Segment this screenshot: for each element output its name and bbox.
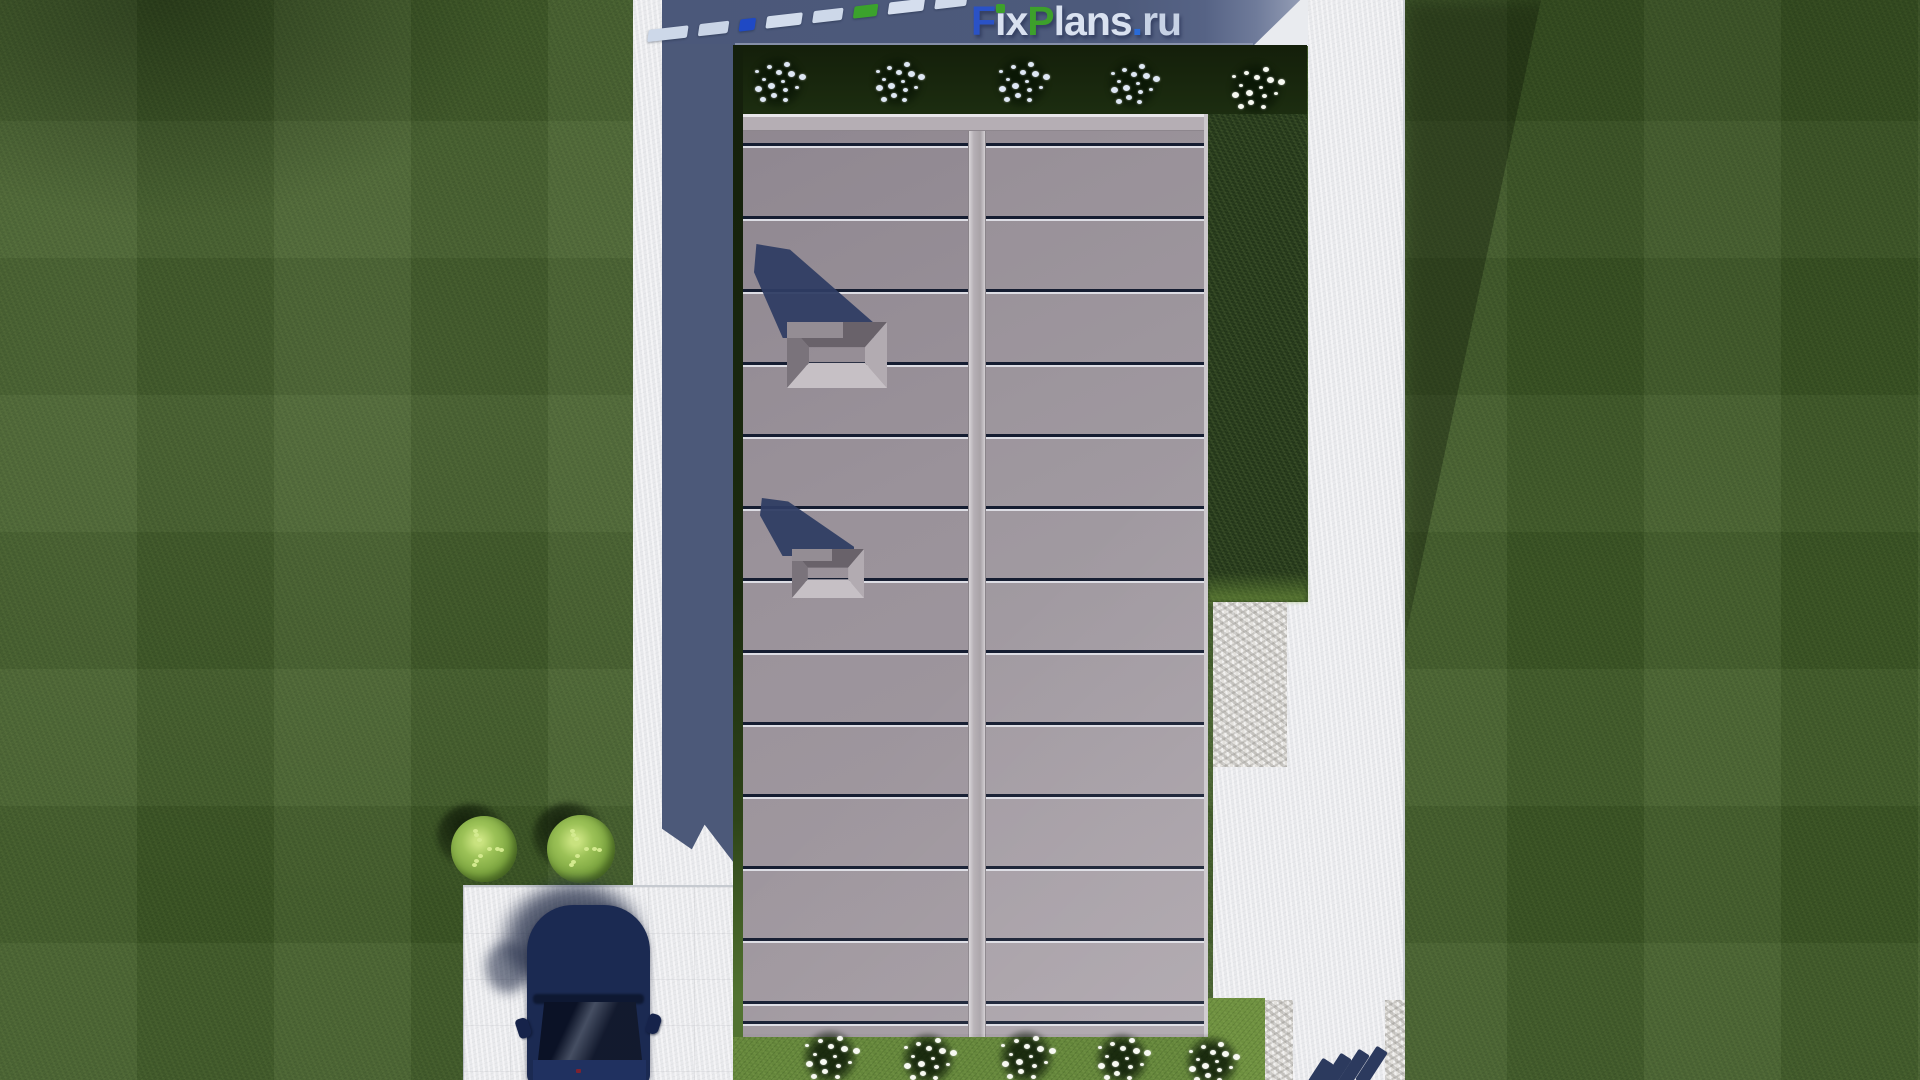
flower [1032,1064,1037,1068]
flower-cluster [898,1029,958,1080]
flower [1025,80,1029,83]
car-shadow [483,938,533,996]
flower [1028,62,1034,67]
flower [1111,72,1115,75]
roof-seam [743,650,968,655]
flower [901,80,905,83]
stone-patio [1213,602,1287,767]
flower [820,1059,827,1065]
flower [1229,1066,1233,1069]
flower [755,70,759,73]
flower [1133,1048,1140,1054]
flower [1049,1048,1056,1054]
flower [876,70,880,73]
roof-seam [986,722,1208,727]
flower [891,93,897,98]
flower [835,1075,840,1079]
flower [1261,105,1266,109]
flower [1016,1059,1023,1065]
flower [1278,79,1285,85]
flower [1233,1054,1240,1060]
watermark-letter: lans [1054,1,1132,41]
flower-bed-blob [1186,1036,1237,1080]
roof-cap-band [743,114,1208,131]
flower [1007,1074,1013,1079]
lawn-shade-topleft [0,0,660,420]
flower [918,74,925,80]
flower [939,1048,946,1054]
flower [1143,73,1150,79]
flower-cluster [995,1026,1057,1080]
flower [813,1053,817,1056]
roof-seam [986,506,1208,511]
roof-seam [986,650,1208,655]
bush-leaf-highlight [499,848,504,852]
flower-cluster [993,53,1051,111]
roof-seam [743,1001,968,1006]
flower [1117,80,1121,83]
flower [776,70,782,75]
roof-seam [986,434,1208,439]
car-windshield [538,1002,642,1060]
flower [1210,1050,1216,1055]
flower [1149,88,1153,91]
flower [1127,1076,1132,1080]
flower [853,1048,860,1054]
flower [1129,1038,1135,1043]
skylight-face [792,549,832,561]
flower [1267,77,1274,83]
flower [1009,1053,1013,1056]
flower [1126,95,1132,100]
skylight-2 [792,549,864,598]
flower-cluster [799,1026,861,1080]
flower [1232,92,1239,98]
roof-seam [986,1001,1208,1006]
flower [1112,1061,1119,1067]
bush-leaf-highlight [477,838,482,842]
garden-bed-sunlit-fringe [1208,572,1307,602]
flower [903,88,908,92]
watermark-letter: ı [995,1,1005,41]
flower [999,86,1006,92]
roof-seam [986,216,1208,221]
flower [910,1075,916,1080]
flower [946,1063,950,1066]
flower [755,86,762,92]
flower [950,1050,957,1056]
flower [1274,92,1278,95]
flower [806,1061,813,1067]
roof-seam [986,362,1208,367]
watermark-letter: F [971,1,995,41]
flower [1153,76,1160,82]
house-roof [743,114,1208,1037]
flower [1144,1050,1151,1056]
roof-section-right [986,114,1208,1037]
flower [841,1046,848,1052]
roof-seam [986,578,1208,583]
flower [1246,90,1253,96]
flower [1125,1057,1129,1060]
flower [1136,82,1140,85]
flower-cluster [1226,58,1286,118]
bush-leaf-highlight [472,863,477,867]
bush-leaf-highlight [574,837,579,841]
flower [904,1063,911,1069]
right-walkway [1308,0,1405,1080]
flower [999,70,1003,73]
flower [784,62,790,67]
watermark-letter: ru [1142,1,1181,41]
car-roof-detail [576,1069,581,1073]
flower [1043,74,1050,80]
roof-ridge [968,114,986,1037]
flower [1122,68,1127,72]
flower [1002,1061,1009,1067]
flower [1189,1050,1193,1053]
flower [1196,1058,1200,1061]
roof-seam [986,938,1208,943]
flower [799,74,806,80]
flower-bed-blob [902,1033,955,1080]
flower-bed-blob [999,1030,1054,1080]
flower-cluster [1092,1029,1152,1080]
flower-bed-blob [1096,1033,1149,1080]
flower [1189,1066,1196,1072]
flower [836,1064,841,1068]
boundary-dash [738,18,756,32]
flower [933,1076,938,1080]
flower [1020,70,1026,75]
flower-cluster [749,53,807,111]
roof-seam [986,143,1208,148]
flower [911,1055,915,1058]
flower [1218,1042,1224,1047]
flower-bed-blob [803,1030,858,1080]
flower [1116,99,1122,104]
flower-cluster [1105,56,1161,112]
flower-cluster [870,54,926,110]
roof-seam [743,722,968,727]
watermark-letter: x [1005,1,1027,41]
flower [811,1074,817,1079]
site-plan-render: FıxPlans.ru [0,0,1920,1080]
flower [1239,84,1243,87]
flower [795,86,799,89]
roof-seam [986,866,1208,871]
fixplans-watermark: FıxPlans.ru [971,1,1181,45]
bush-leaf-highlight [597,848,602,852]
roof-seam [743,143,968,148]
flower [914,86,918,89]
roof-seam [743,866,968,871]
bush-leaf-highlight [570,829,575,833]
flower [837,1036,843,1041]
flower [887,66,892,70]
parked-car [487,872,667,1080]
roof-seam [743,794,968,799]
car-roof [533,1060,646,1080]
flower [1215,1060,1219,1063]
garden-strip-left-of-house [733,45,743,1037]
flower [908,71,915,77]
flower [762,78,766,81]
flower [1105,1055,1109,1058]
flower [896,70,902,75]
flower [781,80,785,83]
flower [882,78,886,81]
flower [1006,78,1010,81]
flower [1138,90,1143,94]
flower [1037,1046,1044,1052]
flower [876,85,883,91]
roof-edge-highlight [1204,114,1208,1037]
watermark-letter: . [1132,1,1142,41]
flower-cluster [1183,1033,1241,1080]
skylight-face [787,322,843,338]
roof-seam [986,794,1208,799]
stone-border-strip [1385,1000,1405,1080]
flower [1140,1063,1144,1066]
garden-bed-right [1208,114,1307,602]
watermark-i-dot [996,4,1005,13]
flower [1039,86,1043,89]
skylight-1 [787,322,887,388]
roof-seam [743,938,968,943]
bush-leaf-highlight [571,833,576,837]
flower [1238,104,1244,109]
flower [1031,1075,1036,1079]
flower [1104,1075,1110,1080]
bush-leaf-highlight [487,847,492,851]
flower [918,1061,925,1067]
flower [1259,86,1263,89]
flower [935,1038,941,1043]
flower [1033,1036,1039,1041]
bush-leaf-highlight [584,847,589,851]
stone-border-strip [1265,1000,1293,1080]
flower [1111,87,1118,93]
flower [931,1057,935,1060]
flower [1263,67,1269,72]
roof-seam [986,289,1208,294]
watermark-letter: P [1027,1,1053,41]
roof-seam [743,216,968,221]
flower [881,97,887,102]
flower [1098,1063,1105,1069]
house-shadow-on-driveway [662,44,733,870]
roof-seam [743,434,968,439]
flower [1131,72,1137,77]
